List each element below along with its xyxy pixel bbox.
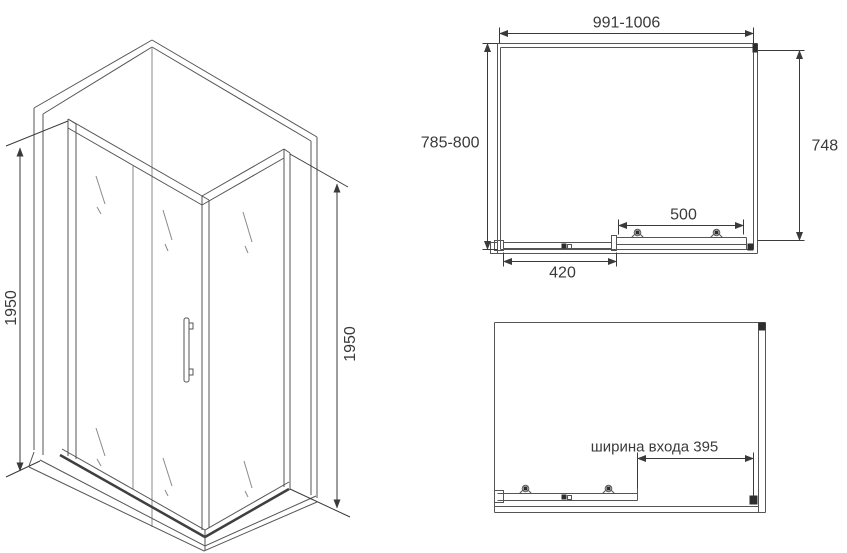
panel-connector-icon (562, 495, 567, 500)
plan-view-open: ширина входа 395 (495, 323, 766, 513)
dimension-height-right: 1950 (290, 154, 359, 517)
fixed-panel-label: 420 (549, 265, 576, 282)
front-frame (68, 119, 290, 530)
entry-width-label: ширина входа 395 (591, 439, 719, 456)
technical-drawing-canvas: 1950 1950 (0, 0, 847, 553)
back-wall-left (34, 40, 152, 455)
panel-connector-icon (562, 244, 567, 249)
wall-profile-cap (759, 323, 766, 331)
dimension-door-travel: 500 (619, 207, 744, 235)
dimension-overall-depth: 785-800 (421, 44, 498, 250)
door-handle-icon (184, 318, 193, 382)
roller-icon (601, 485, 617, 493)
shower-enclosure-drawing: 1950 1950 (0, 0, 847, 553)
dimension-side-panel: 748 (758, 51, 839, 241)
dimension-fixed-panel: 420 (504, 253, 617, 282)
overall-depth-label: 785-800 (421, 135, 480, 152)
dimension-overall-width: 991-1006 (500, 15, 754, 44)
iso-height-left-label: 1950 (3, 290, 20, 326)
sliding-door-bar-open (495, 487, 638, 503)
back-wall-right (152, 40, 317, 527)
corner-profile-cap (750, 496, 758, 505)
side-panel-label: 748 (812, 138, 839, 155)
fixed-panel-bar (495, 236, 617, 251)
iso-view: 1950 1950 (3, 40, 359, 551)
roller-icon (709, 229, 725, 237)
sliding-door-bar (617, 238, 754, 251)
overall-width-label: 991-1006 (593, 15, 661, 32)
wall-profile-cap (753, 44, 758, 53)
enclosure-outline-open (495, 323, 766, 513)
roller-icon (518, 485, 534, 493)
door-travel-label: 500 (670, 207, 697, 224)
plan-view-closed: 991-1006 785-800 748 500 420 (421, 15, 839, 282)
enclosure-outline (491, 44, 758, 254)
roller-icon (630, 229, 646, 237)
glass-reflection-marks (96, 176, 252, 497)
iso-height-right-label: 1950 (342, 326, 359, 362)
dimension-entry-width: ширина входа 395 (591, 439, 754, 497)
dimension-height-left: 1950 (3, 121, 68, 477)
base-tray (29, 449, 317, 551)
